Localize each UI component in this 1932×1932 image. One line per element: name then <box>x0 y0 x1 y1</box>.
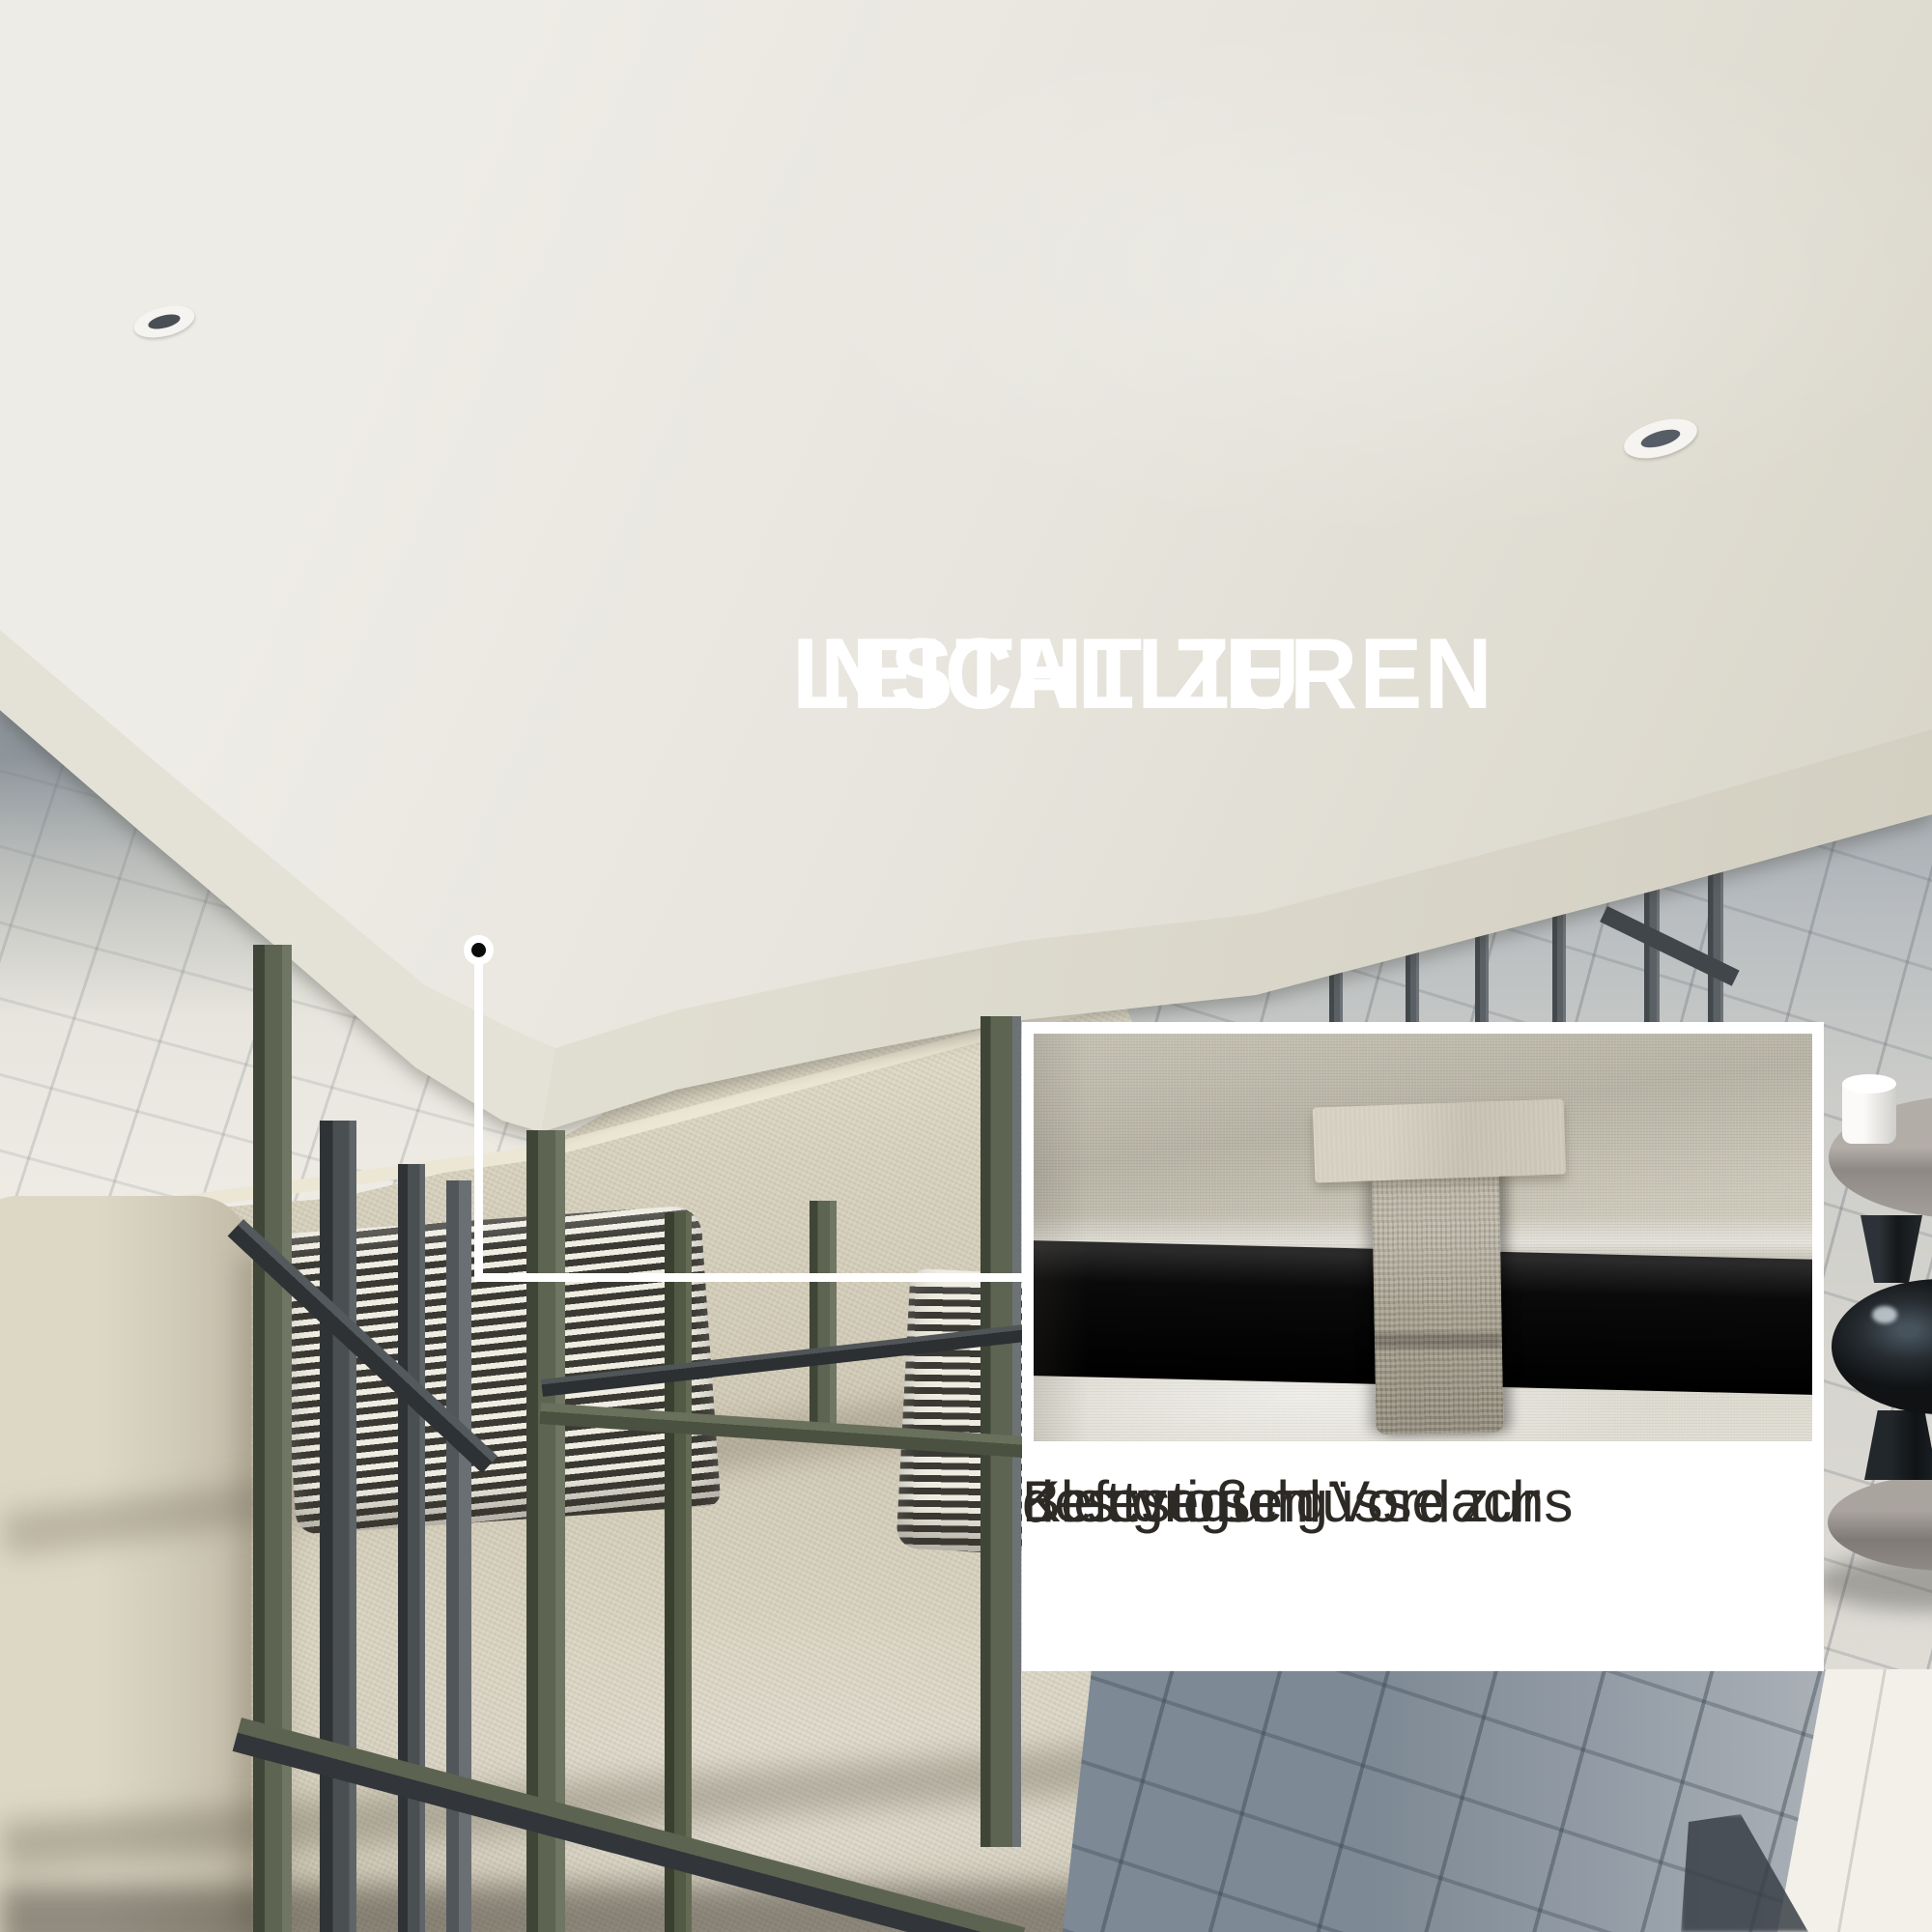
gazebo-short-bar-olive <box>810 1201 837 1428</box>
photo-vignette <box>1034 1034 1812 1441</box>
inset-caption: Klettverschlüsse zur Befestigung des gro… <box>1022 1441 1824 1671</box>
gazebo-post-dark <box>320 1121 356 1932</box>
detail-inset-panel: Klettverschlüsse zur Befestigung des gro… <box>1022 1022 1824 1671</box>
callout-line-vertical <box>474 949 483 1281</box>
gazebo-bar-dark <box>398 1164 425 1932</box>
gazebo-bar-olive <box>665 1212 692 1932</box>
callout-line-horizontal <box>474 1273 1025 1282</box>
glass-highlight <box>1872 1306 1897 1323</box>
headline-line-2: INSTALLIEREN <box>792 626 1494 724</box>
gazebo-post-olive <box>253 945 292 1932</box>
caption-line-3: des großen Vordachs <box>1022 1466 1573 1538</box>
product-marketing-image: LEICHT ZU INSTALLIEREN <box>0 0 1932 1932</box>
gazebo-bar-grey <box>446 1180 471 1932</box>
white-cup-rim <box>1842 1074 1896 1094</box>
gazebo-post-olive-right <box>980 1016 1021 1847</box>
callout-dot <box>471 943 486 957</box>
velcro-detail-photo <box>1034 1034 1812 1441</box>
